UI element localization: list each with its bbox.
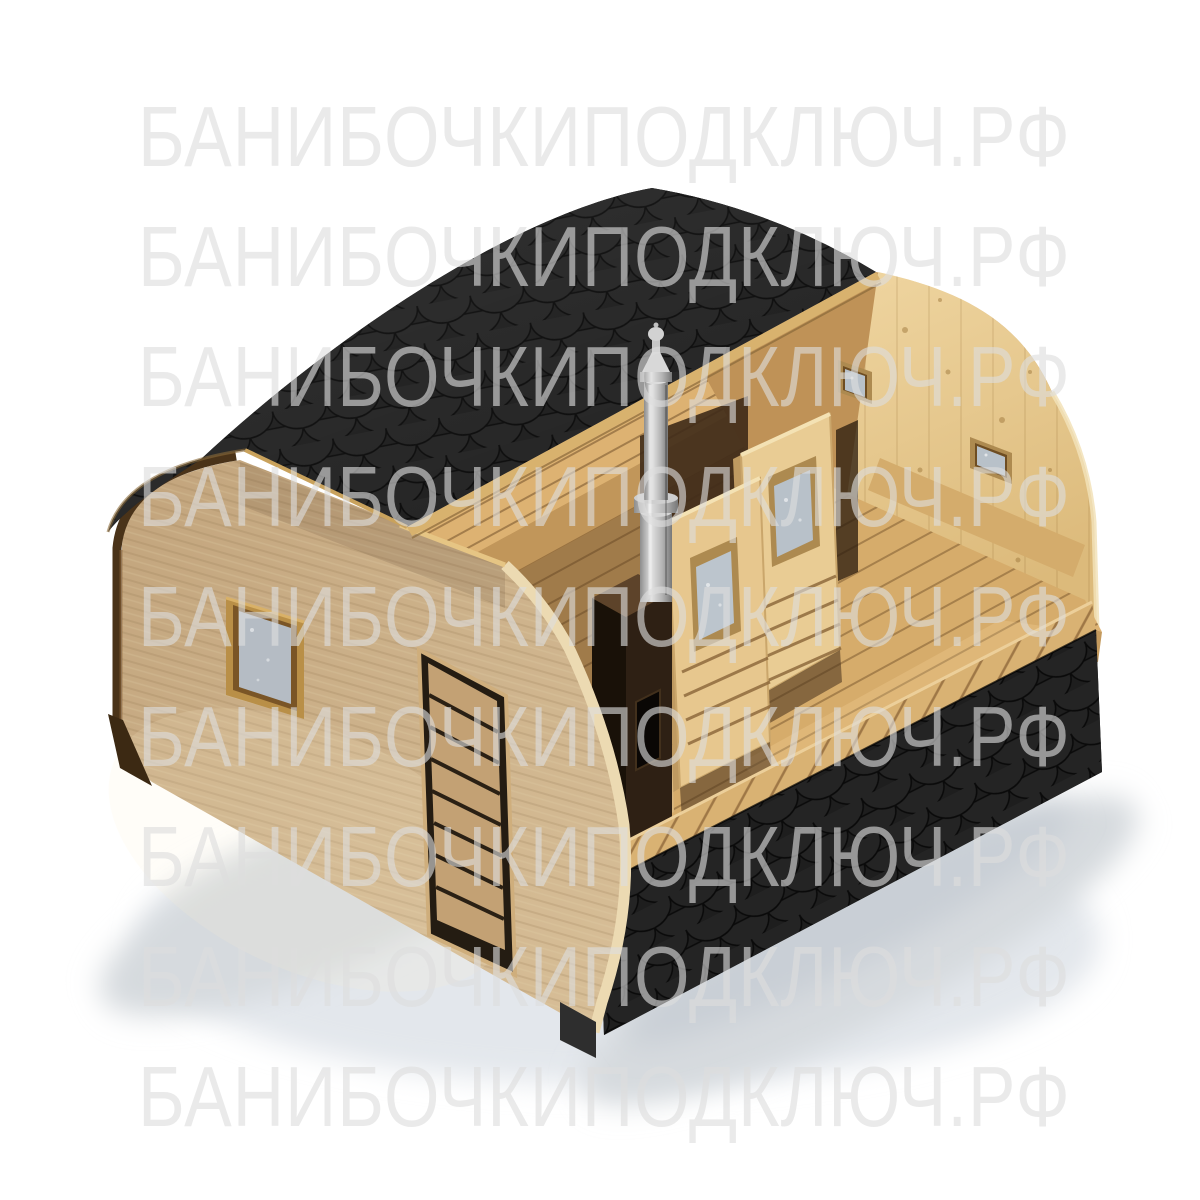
sauna-3d-scene [0,0,1200,1200]
product-render-sauna-cutaway: БАНИБОЧКИПОДКЛЮЧ.РФ БАНИБОЧКИПОДКЛЮЧ.РФ … [0,0,1200,1200]
chimney-pipe [644,380,668,500]
doorway-shadow [836,420,858,582]
chimney-cap [648,327,664,341]
chimney-pipe-lower [640,512,672,602]
stove-vent [636,690,660,770]
entrance-door [419,650,515,975]
